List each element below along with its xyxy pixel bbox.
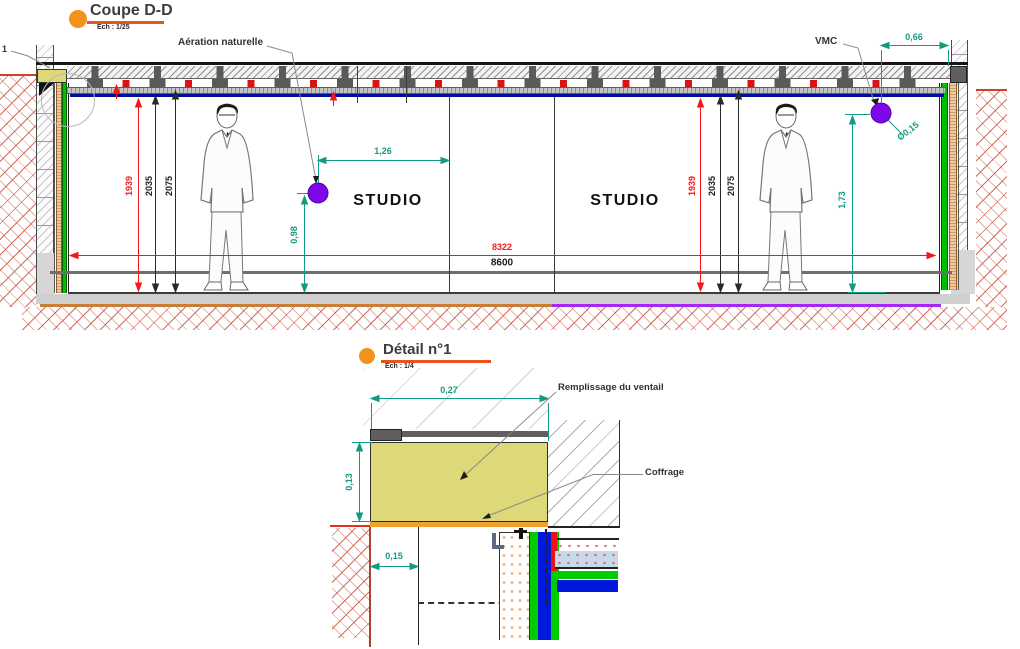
detail-earth: [332, 528, 369, 638]
dim-8600: 8600: [491, 258, 513, 269]
dim-2035-right: 2035: [707, 176, 717, 196]
detail-scale: Ech : 1/4: [385, 363, 414, 370]
detail-green-inner: [530, 532, 538, 640]
vmc-label: VMC: [815, 36, 837, 47]
dim-0-13: 0,13: [344, 473, 354, 491]
room-label-right: STUDIO: [590, 192, 659, 210]
dim-0-98: 0,98: [289, 226, 299, 244]
coupe-title: Coupe D-D: [90, 2, 173, 20]
detail-dashed-v: [545, 529, 547, 603]
right-wall-membrane: [941, 83, 948, 290]
detail-slab-bottom-line: [557, 538, 619, 540]
dim-1-26: 1,26: [374, 146, 392, 156]
room-label-left: STUDIO: [353, 192, 422, 210]
extension-lines: [358, 66, 555, 292]
ceiling-blue-membrane: [70, 94, 944, 97]
detail-lintel-block: [370, 429, 402, 441]
detail-callout-circle: [41, 73, 95, 127]
vmc-duct-circle: [871, 103, 891, 123]
floor-underlay-left: [40, 304, 552, 307]
right-wall-face: [939, 83, 940, 292]
remplissage-label: Remplissage du ventail: [558, 382, 664, 393]
detail-bracket-h: [492, 545, 504, 549]
detail-slab-hatch: [548, 420, 620, 528]
dim-0-66: 0,66: [905, 32, 923, 42]
dim-2075-left: 2075: [164, 176, 174, 196]
floor-underlay-purple: [552, 304, 941, 307]
aeration-label: Aération naturelle: [178, 37, 263, 48]
dim-diam-0-15: Ø0,15: [895, 120, 920, 143]
coupe-scale: Ech : 1/25: [97, 24, 130, 31]
detail-inner-face-line: [418, 527, 419, 645]
earth-right-topline: [976, 89, 1007, 91]
dim-1-73: 1,73: [837, 191, 847, 209]
person-figure-right: [753, 102, 821, 294]
aeration-duct-circle: [308, 183, 328, 203]
ceiling-end-block: [950, 66, 967, 83]
detail-coffrage-strip: [370, 522, 548, 527]
earth-left: [0, 76, 36, 307]
dim-8322: 8322: [492, 242, 512, 252]
callout-number: 1: [2, 44, 7, 54]
earth-left-topline: [0, 74, 36, 76]
earth-bottom: [22, 307, 1007, 330]
floor-slab: [36, 294, 970, 304]
coupe-title-bullet-icon: [69, 10, 87, 28]
dim-0-27: 0,27: [440, 385, 458, 395]
detail-screed-dots: [556, 542, 618, 550]
detail-ground-line: [330, 525, 370, 527]
detail-title-bullet-icon: [359, 348, 375, 364]
dim-2035-left: 2035: [144, 176, 154, 196]
ceiling-board: [67, 87, 945, 94]
detail-blue-floor: [557, 580, 618, 592]
ceiling-fixings: [67, 80, 890, 87]
dim-0-15: 0,15: [385, 551, 403, 561]
detail-green-floor: [557, 571, 618, 579]
detail-ventail-block: [370, 442, 548, 522]
detail-upper-hatch: [363, 368, 548, 429]
detail-anchor-bar: [514, 530, 527, 533]
dim-1939-right: 1939: [687, 176, 697, 196]
detail-title: Détail n°1: [383, 341, 452, 358]
person-figure-left: [194, 102, 262, 294]
detail-screed-strip: [555, 551, 618, 569]
architectural-drawing: Coupe D-D Ech : 1/25 Détail n°1 Ech : 1/…: [0, 0, 1020, 649]
right-wall-insulation: [949, 83, 957, 290]
ceiling-top-line: [36, 62, 968, 65]
coffrage-label: Coffrage: [645, 467, 684, 478]
dim-1939-left: 1939: [124, 176, 134, 196]
earth-right: [976, 91, 1007, 307]
right-wall-line: [958, 83, 959, 290]
detail-wall-edge-line: [369, 527, 371, 647]
dim-2075-right: 2075: [726, 176, 736, 196]
